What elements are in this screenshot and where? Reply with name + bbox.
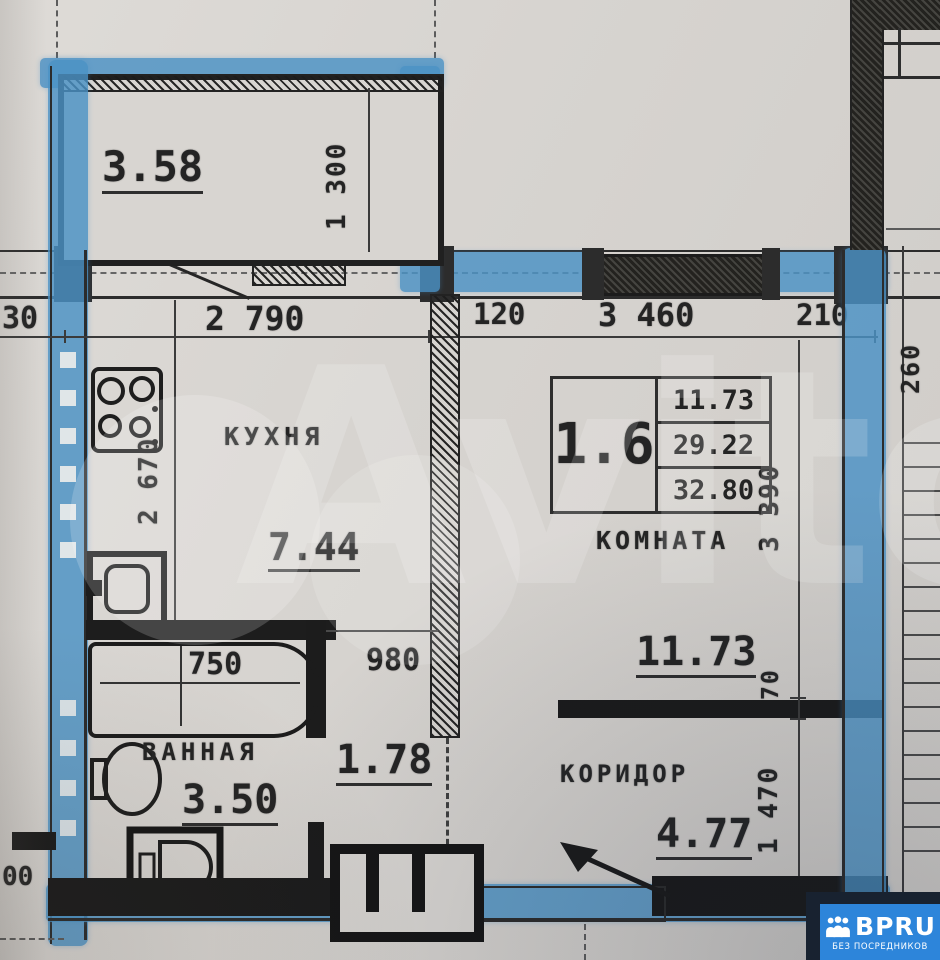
- hall-area-label: 1.78: [336, 740, 432, 786]
- dimension-partition: 120: [473, 300, 525, 329]
- bath-opening-dimension: 980: [366, 646, 420, 676]
- wall-stub: [12, 832, 56, 850]
- dimension-line: [798, 340, 800, 885]
- wall-post: [582, 248, 604, 300]
- entrance-arrow-icon: [550, 836, 690, 908]
- wall-line: [842, 250, 845, 920]
- stamp-areas-table: 11.73 29.22 32.80: [658, 379, 769, 511]
- corridor-depth-dimension: 1 470: [756, 714, 782, 854]
- wall-line: [884, 42, 940, 45]
- kitchen-area-label: 7.44: [268, 528, 360, 572]
- partition-wall: [430, 294, 460, 738]
- sink-icon: [86, 550, 168, 628]
- axis-line: [584, 924, 586, 960]
- exterior-wall: [48, 878, 340, 916]
- wardrobe-divider: [412, 854, 425, 912]
- window: [60, 336, 76, 558]
- axis-line: [56, 0, 58, 58]
- marker-wall-highlight: [432, 252, 592, 292]
- wall-line: [886, 228, 940, 230]
- living-room-label: КОМНАТА: [596, 528, 729, 553]
- dimension-kitchen-width: 2 790: [205, 302, 304, 335]
- bathtub-inner-line: [180, 646, 182, 726]
- wall-post: [308, 822, 324, 880]
- wall-line: [882, 248, 884, 922]
- axis-line: [0, 938, 64, 940]
- dimension-line: [174, 300, 176, 622]
- floor-plan-photo: 3.58 1 300 30 2 790 120 3 460 210 КУХНЯ …: [0, 0, 940, 960]
- door-opening: [446, 738, 449, 854]
- bathtub-length-dimension: 750: [188, 650, 242, 680]
- bathtub-inner-line: [100, 682, 300, 684]
- dimension-line: [368, 88, 370, 252]
- window: [598, 254, 774, 296]
- wall-post: [762, 248, 780, 300]
- marker-wall-highlight: [842, 248, 886, 922]
- interior-wall: [558, 700, 884, 718]
- dimension-room-width: 3 460: [598, 299, 694, 331]
- living-room-area-label: 11.73: [636, 632, 756, 678]
- dimension-offset: 30: [2, 304, 38, 334]
- kitchen-label: КУХНЯ: [224, 424, 324, 449]
- wall-line: [50, 66, 52, 944]
- stove-icon: [90, 366, 164, 454]
- stair-width-dimension: 260: [898, 302, 923, 394]
- axis-line: [434, 0, 436, 58]
- wall-line: [884, 76, 940, 79]
- stamp-total-area: 32.80: [658, 466, 769, 511]
- wall-line: [898, 28, 901, 78]
- brand-tagline: БЕЗ ПОСРЕДНИКОВ: [832, 942, 928, 952]
- bathroom-label: ВАННАЯ: [142, 740, 259, 764]
- corridor-label: КОРИДОР: [560, 762, 689, 786]
- bathroom-area-label: 3.50: [182, 780, 278, 826]
- apartment-stamp: 1.6 11.73 29.22 32.80: [550, 376, 772, 514]
- brand-name: BPRU: [855, 912, 936, 941]
- wall-thickness-dimension: 70: [760, 650, 783, 700]
- wardrobe-divider: [366, 854, 379, 912]
- stamp-living-area: 11.73: [658, 379, 769, 421]
- window: [60, 676, 76, 836]
- dimension-tick: [790, 697, 806, 699]
- people-group-icon: [824, 916, 852, 938]
- stair-steps: [904, 436, 940, 852]
- dimension-tick: [64, 330, 66, 343]
- stamp-unit-number: 1.6: [553, 379, 658, 511]
- balcony-wall-hatch: [58, 74, 444, 92]
- dimension-right: 210: [796, 301, 848, 330]
- balcony-depth-dimension: 1 300: [324, 110, 350, 230]
- bottom-cut-dimension: 00: [2, 864, 33, 890]
- balcony-area-label: 3.58: [102, 146, 203, 194]
- wardrobe-icon: [330, 844, 484, 942]
- dimension-tick: [790, 718, 806, 720]
- neighbor-wall: [850, 0, 884, 250]
- stamp-apartment-area: 29.22: [658, 421, 769, 466]
- neighbor-wall: [880, 0, 940, 30]
- bathroom-wall: [86, 620, 336, 640]
- door-threshold: [326, 630, 438, 632]
- bpru-logo: BPRU БЕЗ ПОСРЕДНИКОВ: [820, 904, 940, 960]
